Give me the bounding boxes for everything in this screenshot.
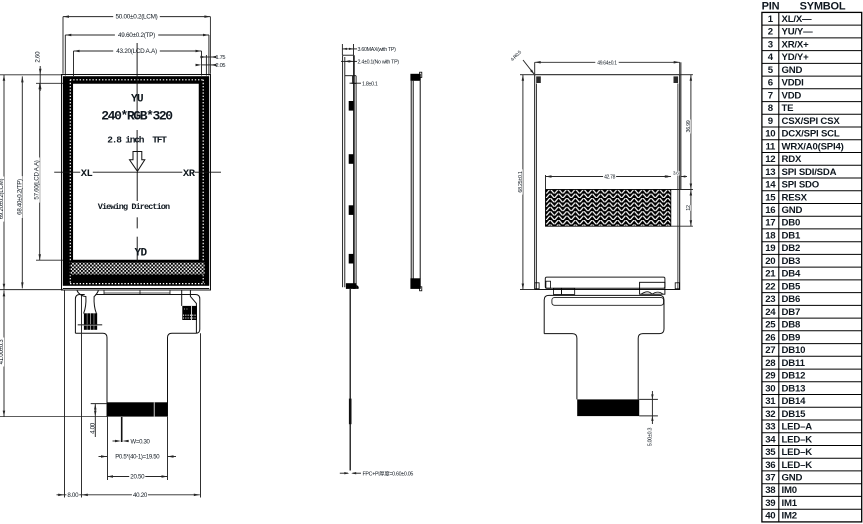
svg-text:LED–K: LED–K (782, 447, 813, 458)
svg-text:LED–K: LED–K (782, 460, 813, 471)
svg-text:SYMBOL: SYMBOL (800, 1, 846, 13)
svg-text:DCX/SPI SCL: DCX/SPI SCL (782, 129, 840, 140)
svg-text:32: 32 (765, 409, 775, 420)
svg-text:25: 25 (765, 320, 776, 331)
svg-text:W=0.30: W=0.30 (131, 439, 151, 445)
svg-text:240*RGB*320: 240*RGB*320 (101, 108, 173, 123)
svg-text:40.20: 40.20 (133, 492, 148, 499)
svg-text:DB13: DB13 (782, 383, 806, 394)
svg-text:18: 18 (765, 231, 776, 242)
svg-text:50.00±0.2(LCM): 50.00±0.2(LCM) (116, 14, 158, 21)
svg-text:DB6: DB6 (782, 294, 801, 305)
svg-text:40: 40 (765, 511, 775, 522)
svg-text:DB1: DB1 (782, 231, 801, 242)
svg-text:PIN: PIN (762, 1, 780, 13)
svg-text:TE: TE (782, 103, 795, 114)
svg-text:6: 6 (768, 78, 773, 89)
svg-text:8.00: 8.00 (67, 492, 79, 499)
svg-text:YD: YD (134, 247, 147, 259)
svg-text:2.8 inch TFT: 2.8 inch TFT (107, 134, 167, 145)
svg-text:2.60: 2.60 (34, 51, 41, 63)
svg-text:36.99: 36.99 (686, 120, 692, 132)
svg-text:68.40±0.2(TP): 68.40±0.2(TP) (16, 179, 23, 215)
svg-text:41.00±0.3: 41.00±0.3 (0, 339, 5, 365)
svg-text:57.60(LCD A.A): 57.60(LCD A.A) (34, 160, 41, 199)
svg-text:DB2: DB2 (782, 243, 801, 254)
svg-text:19: 19 (765, 243, 775, 254)
svg-text:30: 30 (765, 383, 775, 394)
svg-text:33: 33 (765, 422, 775, 433)
svg-text:38: 38 (765, 485, 776, 496)
svg-text:4.00: 4.00 (90, 422, 97, 434)
svg-text:RESX: RESX (782, 192, 808, 203)
svg-text:35: 35 (765, 447, 776, 458)
svg-text:XL: XL (81, 168, 93, 180)
svg-text:DB15: DB15 (782, 409, 807, 420)
svg-text:2: 2 (768, 27, 773, 38)
svg-text:DB3: DB3 (782, 256, 801, 267)
svg-text:15: 15 (765, 192, 776, 203)
svg-text:LED–A: LED–A (782, 422, 813, 433)
svg-text:36: 36 (765, 460, 775, 471)
svg-text:LED–K: LED–K (782, 434, 813, 445)
svg-text:39: 39 (765, 498, 775, 509)
svg-text:RDX: RDX (782, 154, 802, 165)
svg-text:P0.5*(40-1)=19.50: P0.5*(40-1)=19.50 (115, 455, 160, 461)
svg-text:3: 3 (768, 39, 773, 50)
svg-text:29: 29 (765, 371, 775, 382)
svg-text:IM0: IM0 (782, 485, 797, 496)
svg-text:9: 9 (768, 116, 773, 127)
svg-text:2.4±0.1(No with TP): 2.4±0.1(No with TP) (358, 59, 400, 65)
svg-text:YU: YU (131, 94, 143, 106)
svg-text:12: 12 (686, 205, 692, 211)
svg-text:11: 11 (766, 141, 777, 152)
svg-text:VDDI: VDDI (782, 78, 805, 89)
svg-text:FPC+PI厚度=0.60±0.05: FPC+PI厚度=0.60±0.05 (363, 470, 414, 478)
svg-text:DB4: DB4 (782, 269, 801, 280)
svg-text:WRX/A0(SPI4): WRX/A0(SPI4) (782, 141, 844, 152)
svg-text:CSX/SPI CSX: CSX/SPI CSX (782, 116, 841, 127)
svg-text:DB7: DB7 (782, 307, 801, 318)
svg-text:12: 12 (765, 154, 775, 165)
svg-text:SPI SDO: SPI SDO (782, 180, 820, 191)
svg-text:XR: XR (183, 168, 196, 180)
svg-text:17: 17 (765, 218, 775, 229)
svg-text:10: 10 (765, 129, 775, 140)
svg-text:49.60±0.2(TP): 49.60±0.2(TP) (118, 32, 155, 39)
svg-text:DB5: DB5 (782, 281, 801, 292)
svg-text:31: 31 (765, 396, 776, 407)
svg-text:13: 13 (765, 167, 775, 178)
svg-text:16: 16 (765, 205, 775, 216)
svg-text:VDD: VDD (782, 90, 802, 101)
svg-text:23: 23 (765, 294, 775, 305)
svg-text:XL/X—: XL/X— (782, 14, 813, 25)
svg-text:20.50: 20.50 (130, 474, 145, 481)
svg-text:28: 28 (765, 358, 776, 369)
svg-text:3.60MAX(with TP): 3.60MAX(with TP) (358, 47, 397, 53)
svg-text:24: 24 (765, 307, 776, 318)
svg-text:IM2: IM2 (782, 511, 797, 522)
svg-text:37: 37 (765, 473, 775, 484)
svg-text:DB11: DB11 (782, 358, 806, 369)
svg-text:7: 7 (768, 90, 773, 101)
svg-text:GND: GND (782, 65, 803, 76)
svg-text:1.75: 1.75 (216, 55, 226, 61)
svg-text:3.6: 3.6 (673, 171, 679, 177)
svg-text:69.20±0.2(LCM): 69.20±0.2(LCM) (0, 179, 5, 220)
svg-text:DB12: DB12 (782, 371, 806, 382)
svg-text:5.00±0.3: 5.00±0.3 (648, 427, 654, 446)
svg-text:14: 14 (765, 180, 776, 191)
svg-text:YU/Y—: YU/Y— (782, 27, 814, 38)
svg-text:DB10: DB10 (782, 345, 806, 356)
svg-text:27: 27 (765, 345, 775, 356)
svg-text:DB9: DB9 (782, 332, 801, 343)
svg-text:DB8: DB8 (782, 320, 801, 331)
svg-text:SPI SDI/SDA: SPI SDI/SDA (782, 167, 837, 178)
svg-text:DB14: DB14 (782, 396, 807, 407)
svg-text:21: 21 (765, 269, 776, 280)
svg-text:2.05: 2.05 (216, 63, 226, 69)
svg-text:68.25±0.1: 68.25±0.1 (518, 171, 524, 193)
svg-text:YD/Y+: YD/Y+ (782, 52, 810, 63)
svg-text:22: 22 (765, 281, 775, 292)
svg-text:26: 26 (765, 332, 775, 343)
svg-text:1.8±0.1: 1.8±0.1 (362, 82, 378, 88)
svg-text:Viewing Direction: Viewing Direction (98, 202, 170, 212)
svg-text:49.64±0.1: 49.64±0.1 (597, 60, 617, 66)
svg-text:GND: GND (782, 473, 803, 484)
svg-text:20: 20 (765, 256, 775, 267)
svg-text:43.20(LCD A.A): 43.20(LCD A.A) (116, 48, 157, 55)
svg-text:XR/X+: XR/X+ (782, 39, 810, 50)
svg-text:GND: GND (782, 205, 803, 216)
svg-text:42.78: 42.78 (604, 175, 616, 181)
svg-text:34: 34 (765, 434, 776, 445)
svg-text:IM1: IM1 (782, 498, 798, 509)
svg-text:DB0: DB0 (782, 218, 801, 229)
